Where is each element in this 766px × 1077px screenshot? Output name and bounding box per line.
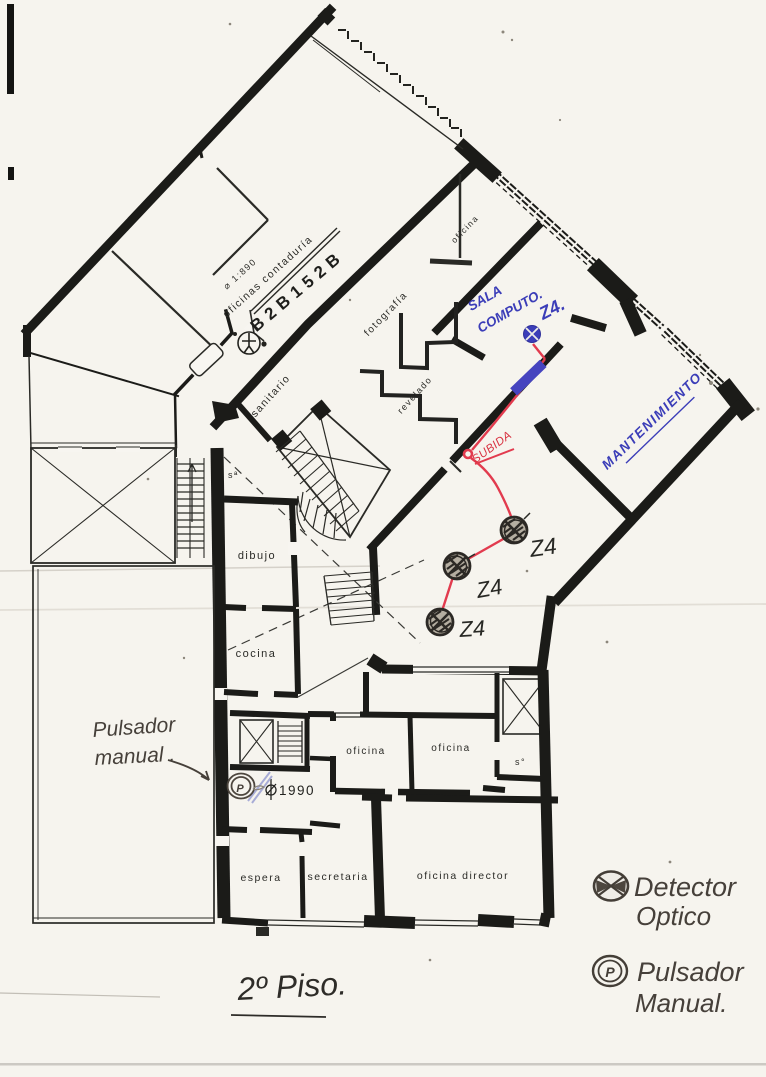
svg-text:cocina: cocina [236,648,277,660]
svg-text:2º Piso.: 2º Piso. [235,965,347,1007]
svg-text:dibujo: dibujo [238,550,276,562]
svg-text:Pulsador: Pulsador [637,957,745,987]
svg-text:P: P [236,783,244,795]
svg-text:Manual.: Manual. [635,988,728,1018]
svg-text:Z4: Z4 [527,532,558,562]
svg-text:secretaria: secretaria [307,871,368,883]
svg-text:espera: espera [240,872,281,884]
svg-text:oficina: oficina [431,743,470,754]
svg-text:oficina: oficina [346,746,385,757]
svg-text:Z4: Z4 [458,615,486,642]
svg-text:Optico: Optico [636,901,711,931]
svg-text:manual .: manual . [94,743,176,770]
svg-text:1990: 1990 [279,783,315,798]
svg-text:s°: s° [515,757,526,767]
svg-text:sª: sª [228,470,239,480]
svg-text:P: P [605,964,615,980]
svg-text:oficina director: oficina director [417,870,509,882]
svg-text:Z4: Z4 [474,574,505,603]
svg-text:Detector: Detector [634,872,737,902]
